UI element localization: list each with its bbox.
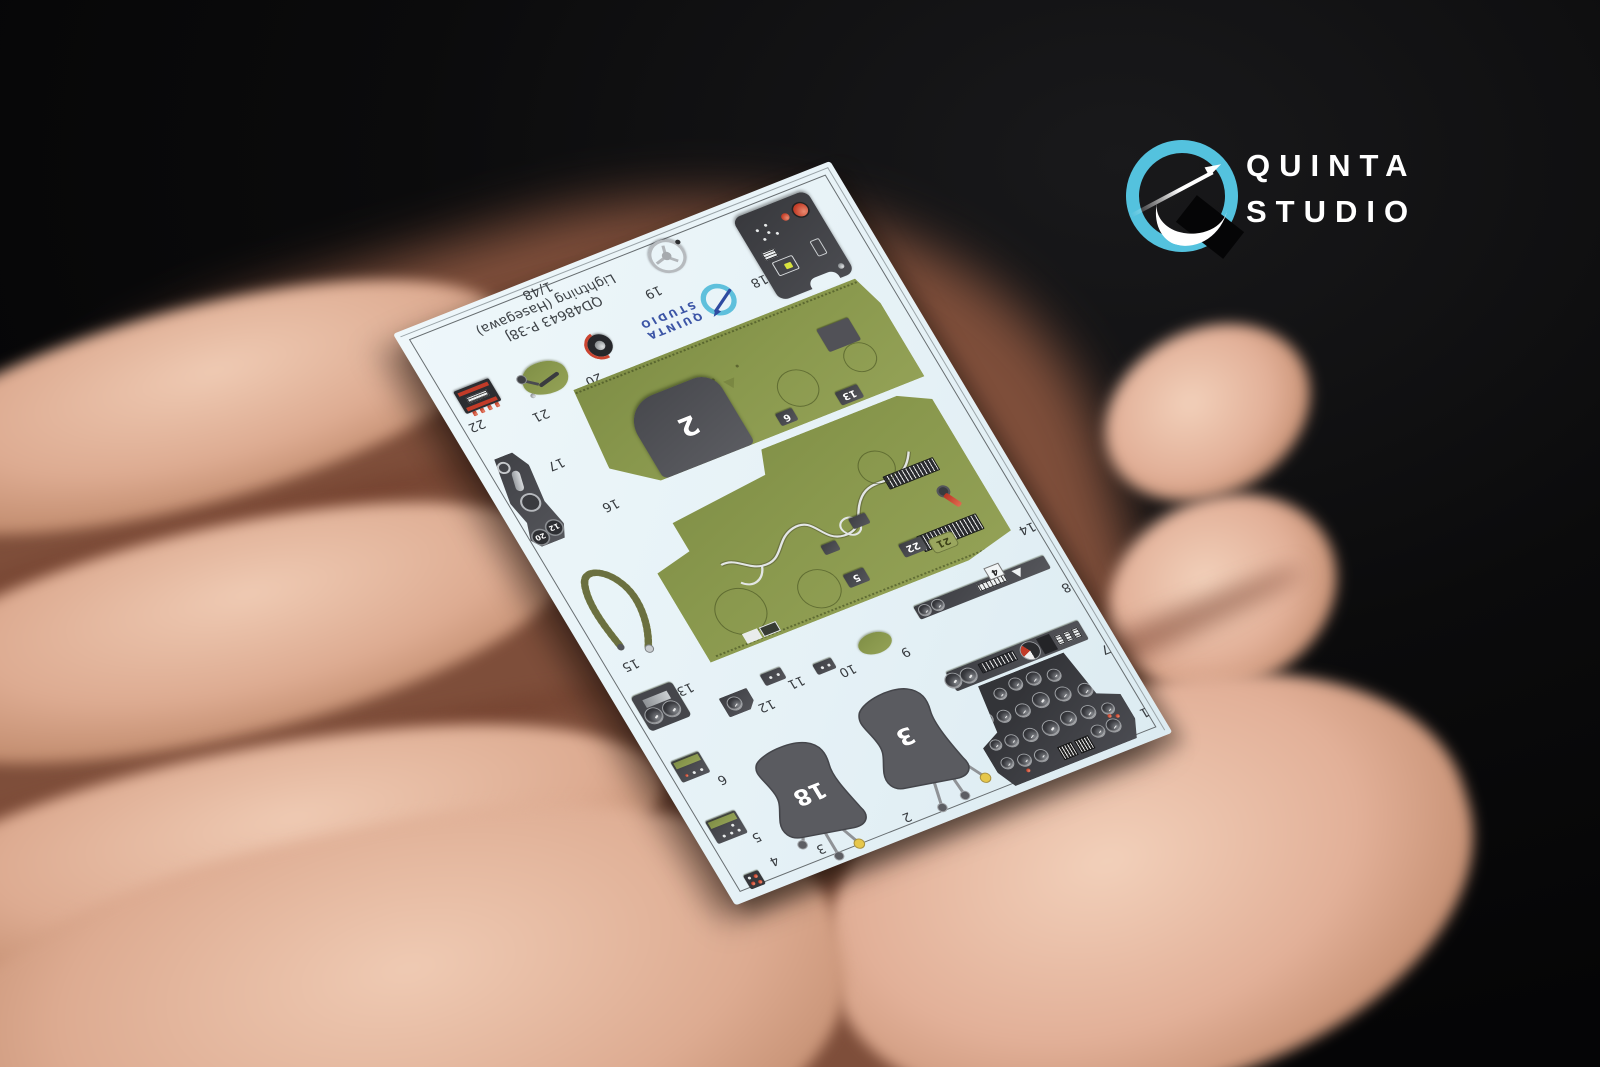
part-6-switch-panel <box>670 751 710 783</box>
gauge-dial <box>1058 710 1078 727</box>
red-warning-dot <box>1115 713 1121 718</box>
gauge-dial <box>1076 682 1095 698</box>
gauge-dial <box>999 757 1015 770</box>
indicator-light <box>784 262 794 270</box>
dot <box>763 238 767 242</box>
knob-dot <box>722 834 726 838</box>
gray-knob <box>936 802 949 813</box>
number-on-tab-21: 21 <box>934 535 953 550</box>
gauge-dial <box>1030 691 1052 709</box>
part-label-6: 6 <box>714 771 729 787</box>
knob-dot <box>730 831 734 835</box>
knob-dot <box>692 771 696 775</box>
gauge-dial <box>1045 668 1062 683</box>
part-6-number-box: 6 <box>775 408 799 427</box>
red-knob-dot <box>685 774 689 778</box>
part-label-17: 17 <box>544 454 567 473</box>
gauge-dial <box>725 696 744 712</box>
part-21-quadrant <box>515 355 575 401</box>
pyramid-bump <box>723 377 739 390</box>
zipper-lever <box>511 470 525 491</box>
gauge-dial <box>1014 702 1033 718</box>
gauge-dial <box>1007 677 1024 692</box>
red-pin <box>487 405 493 411</box>
knob-dot <box>737 828 741 832</box>
knob-dot <box>700 768 704 772</box>
detail-dot <box>769 676 773 680</box>
part-label-4: 4 <box>766 852 781 868</box>
watermark-line1: QUINTA <box>1246 148 1417 184</box>
window-outline <box>771 255 800 277</box>
part-22-electrical-box <box>453 378 502 414</box>
part-2-panel-flap: 2 <box>621 371 755 479</box>
gray-knob <box>833 850 846 861</box>
part-19-trim-wheel <box>641 234 693 278</box>
data-plate <box>761 248 779 261</box>
dot <box>775 232 779 236</box>
emblem-dial <box>516 490 545 515</box>
part-label-8: 8 <box>1058 579 1073 595</box>
red-button <box>757 879 763 884</box>
red-button <box>753 874 759 879</box>
detail-dot <box>776 673 780 677</box>
part-label-10: 10 <box>836 661 859 680</box>
part-label-1: 1 <box>1136 704 1151 720</box>
knob-dot <box>731 823 735 827</box>
red-pin <box>479 408 485 414</box>
gauge-dial <box>1021 727 1040 743</box>
part-label-16: 16 <box>599 495 622 514</box>
red-knob-large <box>791 201 811 218</box>
gauge-dial <box>1053 685 1073 702</box>
striped-square-gauge <box>1074 735 1096 753</box>
number-on-box-13: 13 <box>840 387 859 402</box>
part-label-9: 9 <box>898 643 913 659</box>
green-base <box>673 754 701 770</box>
lever-ring <box>494 460 513 476</box>
part-10-placard <box>812 658 837 676</box>
part-11-placard <box>760 667 787 686</box>
part-20-knob <box>583 331 618 360</box>
red-warning-dot <box>1107 713 1113 718</box>
mini-gauge-row <box>977 650 1018 673</box>
gauge-dial <box>1079 704 1098 720</box>
white-button <box>747 876 751 880</box>
gauge-dial <box>1089 724 1106 739</box>
gauge-dial <box>930 598 946 611</box>
number-on-part-2: 2 <box>671 408 704 442</box>
gauge-dial <box>1016 753 1033 768</box>
part-18-radio-panel <box>731 190 855 302</box>
dot <box>763 223 767 227</box>
part-4-switch-block <box>743 870 766 890</box>
number-on-knob-12: 12 <box>547 521 561 533</box>
gauge-dial <box>1104 718 1123 734</box>
instrument-cutout <box>769 364 827 413</box>
part-5-switch-panel <box>705 810 748 844</box>
number-on-part-4-tag: 4 <box>989 566 1000 577</box>
part-label-5: 5 <box>749 829 764 845</box>
number-on-knob-20: 20 <box>533 531 547 543</box>
screw <box>837 262 846 269</box>
slot-outline <box>809 238 828 257</box>
white-triangle-marker <box>1011 568 1025 579</box>
printed-logo-text: QUINTA STUDIO <box>635 298 704 342</box>
dot <box>755 229 759 233</box>
part-label-7: 7 <box>1097 641 1112 657</box>
part-label-14: 14 <box>1015 518 1038 537</box>
gauge-dial <box>1024 671 1043 687</box>
gauge-dial <box>1033 748 1050 763</box>
part-9-oval-pad <box>854 627 897 658</box>
gauge-dial <box>989 739 1003 751</box>
gray-knob <box>959 790 972 801</box>
part-label-11: 11 <box>784 672 807 691</box>
part-13-number-box: 13 <box>834 384 864 406</box>
gray-knob <box>796 839 809 850</box>
part-label-12: 12 <box>755 696 778 715</box>
detail-dot <box>735 364 739 368</box>
wheel-pin <box>674 239 681 245</box>
detail-dot <box>827 663 831 667</box>
number-on-box-6: 6 <box>781 411 793 423</box>
part-label-21: 21 <box>529 405 552 424</box>
part-12-wedge-panel <box>719 688 758 718</box>
gauge-dial <box>1040 719 1062 737</box>
gauge-dial <box>1003 733 1020 748</box>
red-pin <box>494 402 500 408</box>
number-on-box-5: 5 <box>850 571 862 583</box>
red-button <box>750 881 756 886</box>
red-knob-small <box>780 212 792 222</box>
number-on-box-22: 22 <box>903 539 922 554</box>
detail-dot <box>820 666 824 670</box>
red-warning-dot <box>1025 768 1031 773</box>
dot <box>767 231 771 235</box>
photo-scene: 1 2 3 4 5 6 7 8 9 10 11 12 13 14 15 16 1… <box>0 0 1600 1067</box>
watermark-line2: STUDIO <box>1246 194 1417 230</box>
part-label-22: 22 <box>465 416 488 435</box>
gauge-dial <box>917 603 933 616</box>
gauge-dial <box>995 709 1012 724</box>
gauge-dial <box>979 713 995 726</box>
gauge-dial <box>660 699 683 719</box>
quinta-studio-watermark: QUINTA STUDIO <box>1118 130 1448 260</box>
gauge-dial <box>992 687 1008 700</box>
